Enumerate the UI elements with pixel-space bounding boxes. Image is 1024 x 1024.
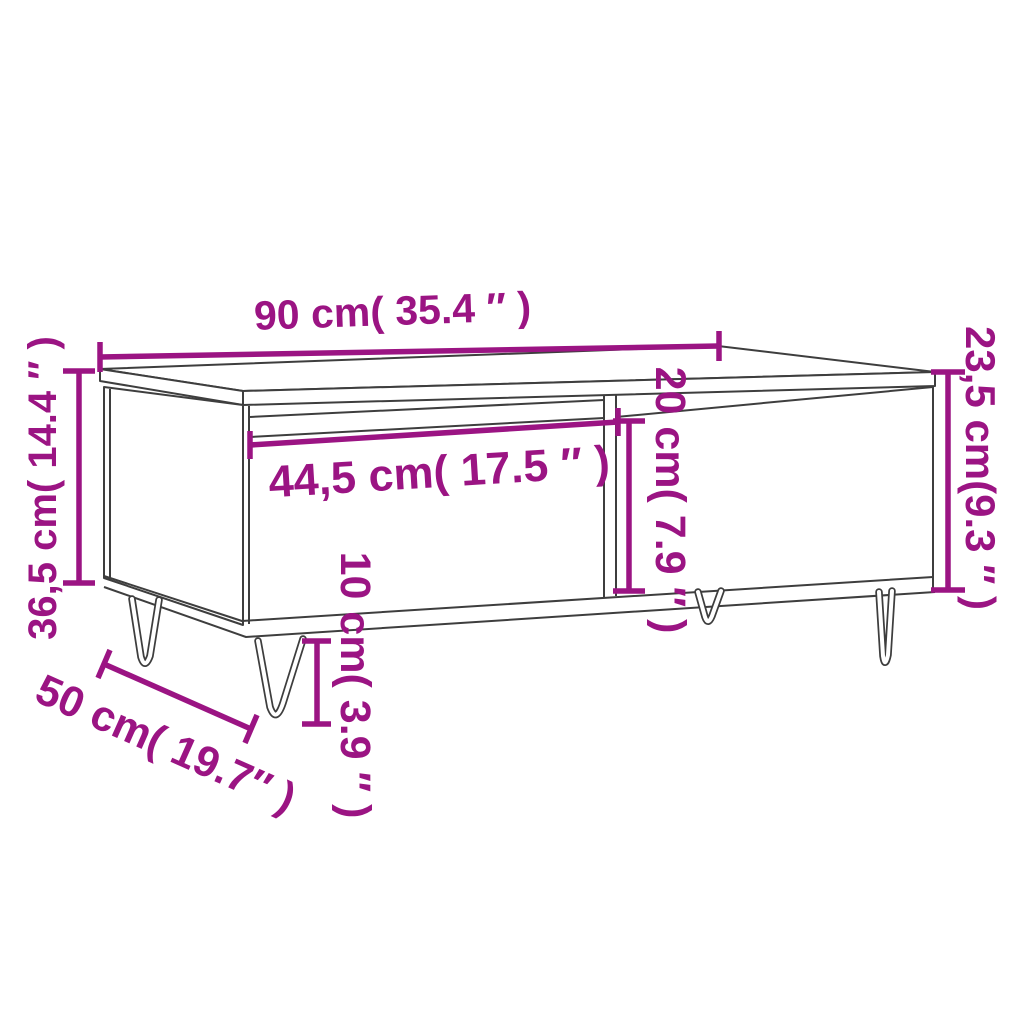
left-panel-face <box>104 387 243 625</box>
leg-front-right <box>879 591 892 662</box>
dim-leg-height-label: 10 cm( 3.9 ″ ) <box>331 552 379 819</box>
dim-compartment-height: 20 cm( 7.9 ″ ) <box>613 367 694 634</box>
dim-leg-height: 10 cm( 3.9 ″ ) <box>302 552 379 819</box>
dim-drawer-width: 44,5 cm( 17.5 ″ ) <box>250 408 618 507</box>
dimension-diagram-page: 90 cm( 35.4 ″ ) 36,5 cm( 14.4 ″ ) 23,5 c… <box>0 0 1024 1024</box>
dim-drawer-width-label: 44,5 cm( 17.5 ″ ) <box>267 436 611 508</box>
left-side-panel <box>104 387 249 625</box>
product-dimension-diagram: 90 cm( 35.4 ″ ) 36,5 cm( 14.4 ″ ) 23,5 c… <box>0 0 1024 1024</box>
leg-rear-left <box>132 599 159 663</box>
dim-compartment-height-label: 20 cm( 7.9 ″ ) <box>646 367 694 634</box>
dim-overall-width-label: 90 cm( 35.4 ″ ) <box>253 283 532 339</box>
leg-front-left <box>258 639 303 715</box>
coffee-table-drawing <box>100 346 935 715</box>
dim-overall-height-label: 36,5 cm( 14.4 ″ ) <box>21 336 65 640</box>
dim-body-height: 23,5 cm(9.3 ″ ) <box>931 326 1004 610</box>
dim-overall-height: 36,5 cm( 14.4 ″ ) <box>21 336 95 640</box>
hairpin-legs <box>132 591 892 715</box>
dim-body-height-label: 23,5 cm(9.3 ″ ) <box>957 326 1004 610</box>
